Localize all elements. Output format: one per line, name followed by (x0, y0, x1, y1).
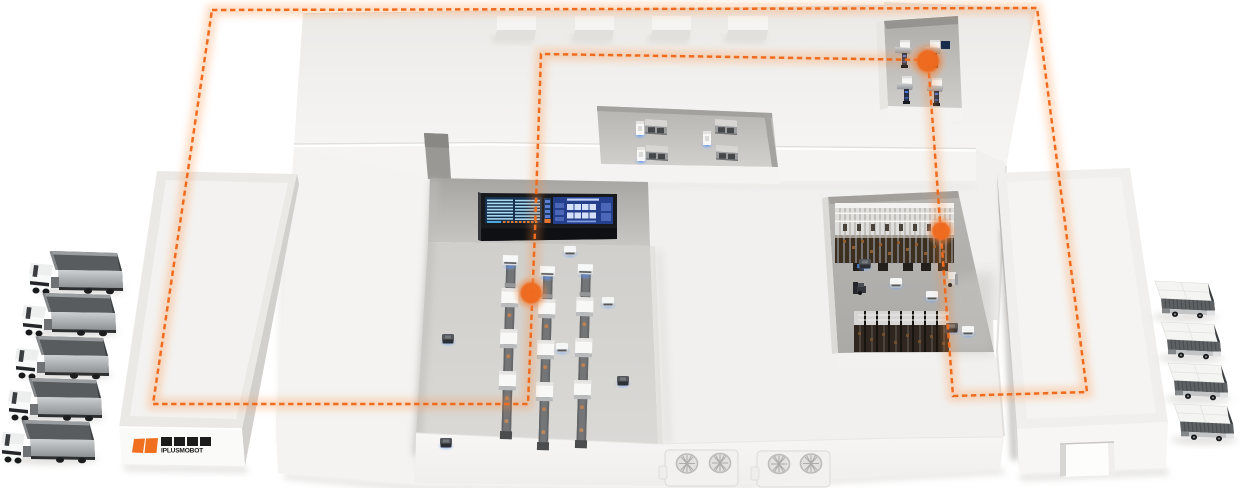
svg-text:IPLUSMOBOT: IPLUSMOBOT (161, 448, 203, 455)
